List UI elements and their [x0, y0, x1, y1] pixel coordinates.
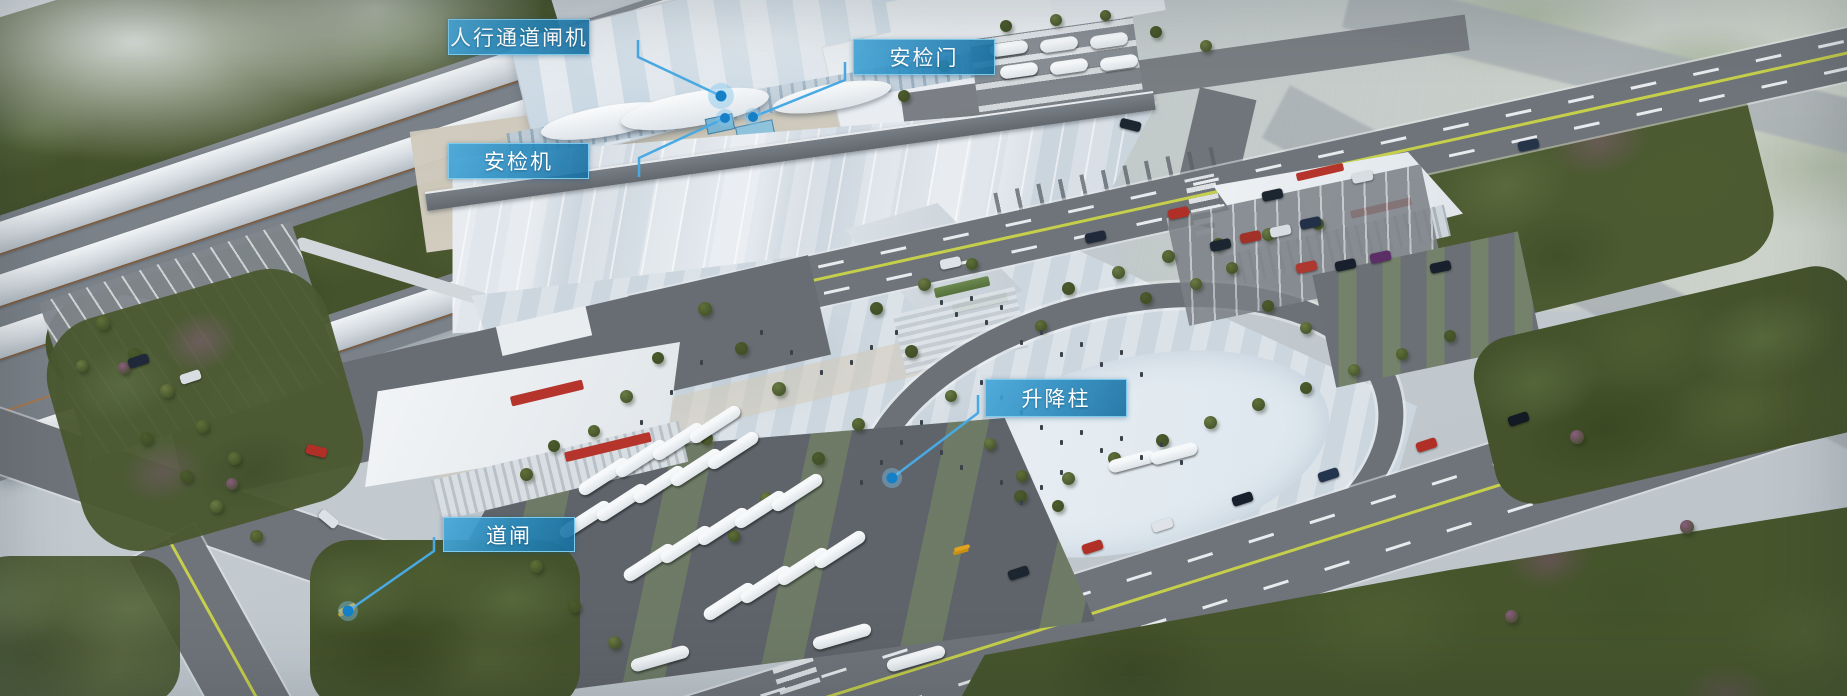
callout-label: 道闸 — [486, 520, 532, 550]
callout-barrier-gate: 道闸 — [443, 517, 575, 552]
aerial-rendering: 人行通道闸机 安检门 安检机 升降柱 道闸 — [0, 0, 1847, 696]
forest-bottom-left — [310, 540, 580, 696]
callout-security-scanner: 安检机 — [448, 143, 589, 179]
callout-label: 升降柱 — [1022, 383, 1091, 413]
callout-security-door: 安检门 — [853, 39, 995, 75]
forest-bottom-left — [0, 556, 180, 696]
callout-label: 安检门 — [890, 42, 959, 72]
callout-pedestrian-gate: 人行通道闸机 — [448, 19, 590, 55]
car — [1415, 437, 1438, 453]
callout-lifting-bollard: 升降柱 — [985, 379, 1127, 417]
callout-label: 安检机 — [484, 146, 553, 176]
callout-label: 人行通道闸机 — [450, 22, 588, 52]
